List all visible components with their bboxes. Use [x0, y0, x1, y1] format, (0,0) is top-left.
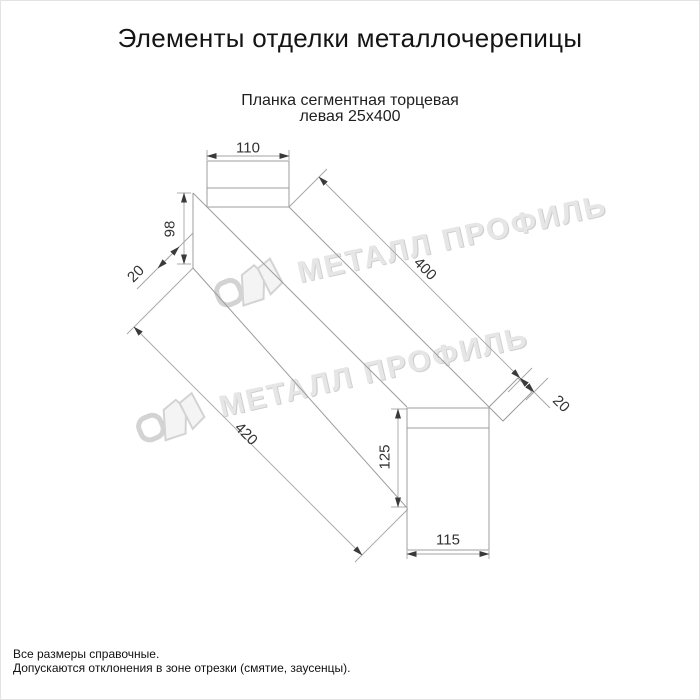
dim-400	[289, 169, 532, 392]
dim-label-right-height: 125	[377, 444, 394, 469]
dim-98	[177, 193, 191, 264]
dim-420	[127, 268, 408, 562]
dim-label-bottom-width: 115	[436, 532, 460, 549]
technical-drawing	[1, 1, 700, 700]
dim-label-top-width: 110	[236, 140, 260, 157]
dim-115	[407, 551, 489, 559]
footer-note-2: Допускаются отклонения в зоне отрезки (с…	[13, 661, 350, 675]
strip-upper-left-edge	[193, 193, 407, 407]
dim-20-near	[137, 233, 193, 289]
dim-label-left-height: 98	[162, 221, 179, 238]
part-outline	[193, 161, 532, 550]
footer-note-1: Все размеры справочные.	[13, 647, 159, 661]
far-end-face	[407, 408, 489, 550]
strip-top-edge	[289, 207, 489, 407]
far-end-fold-tab	[489, 378, 532, 421]
drawing-page: Элементы отделки металлочерепицы Планка …	[0, 0, 700, 700]
strip-lower-edge	[193, 268, 408, 509]
near-end-face	[207, 161, 289, 207]
